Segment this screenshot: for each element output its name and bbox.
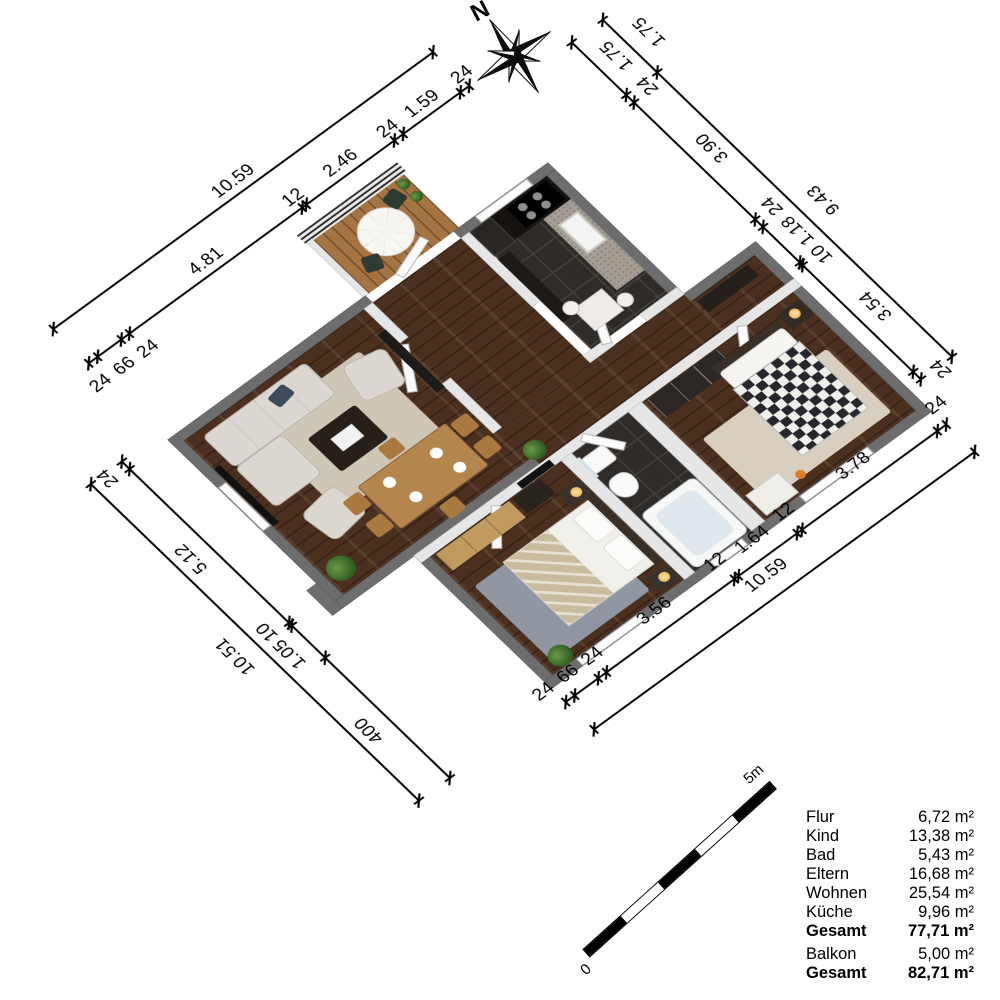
dimension-label-left_inner-1: 5.12 [170,540,213,577]
dimension-label-top_inner-0: 24 [85,370,117,397]
dimension-label-top_inner-5: 2.46 [318,145,362,181]
scale-bar-segment-1 [621,883,664,923]
legend-area-value: 9,96 m² [918,903,974,922]
dimension-label-right_outer-0: 1.75 [628,13,671,50]
legend-area-value: 77,71 m² [908,922,974,941]
compass-north-label: N [466,0,494,27]
legend-room-label: Kind [806,827,839,846]
legend-room-label: Wohnen [806,884,867,903]
legend-row-kind-1: Kind13,38 m² [806,827,974,846]
dimension-label-left_inner-3: 1.05 [268,635,311,672]
legend-row-gesamt-6: Gesamt77,71 m² [806,922,974,941]
scale-bar: 0 5m [582,781,777,958]
scale-bar-five-label: 5m [740,761,767,788]
dimension-label-top_inner-7: 1.59 [400,86,444,122]
legend-room-label: Balkon [806,945,856,964]
legend-room-label: Flur [806,808,834,827]
dimension-label-top_inner-2: 24 [132,336,164,363]
legend-area-value: 82,71 m² [908,964,974,983]
dimension-label-top_inner-3: 4.81 [184,243,228,279]
legend-area-value: 5,43 m² [918,846,974,865]
compass-rose-icon: N [452,0,582,110]
dimension-label-right_inner-6: 3.54 [855,287,898,324]
legend-row-balkon-7: Balkon5,00 m² [806,945,974,964]
dimension-label-right_outer-1: 9.43 [802,181,845,218]
legend-room-label: Bad [806,846,835,865]
scale-bar-zero-label: 0 [577,961,595,979]
legend-area-value: 6,72 m² [918,808,974,827]
legend-row-gesamt-8: Gesamt82,71 m² [806,964,974,983]
legend-row-eltern-3: Eltern16,68 m² [806,865,974,884]
legend-row-küche-5: Küche9,96 m² [806,903,974,922]
dimension-label-right_inner-5: 10 [806,240,838,267]
legend-room-label: Küche [806,903,853,922]
dimension-label-left_inner-0: 24 [92,465,124,492]
scale-bar-segment-0 [584,916,627,956]
dimension-label-right_inner-2: 3.90 [691,129,734,166]
scale-bar-segment-4 [732,782,775,822]
legend-row-flur-0: Flur6,72 m² [806,808,974,827]
legend-row-bad-2: Bad5,43 m² [806,846,974,865]
scale-bar-segment-3 [695,816,738,856]
legend-room-label: Gesamt [806,964,867,983]
legend-area-value: 13,38 m² [909,827,974,846]
floorplan-isometric-scene: 10.592466244.81122.46241.59241.759.431.7… [81,0,1000,835]
legend-room-label: Gesamt [806,922,867,941]
dimension-label-left_inner-4: 400 [349,713,388,747]
room-area-legend: Flur6,72 m²Kind13,38 m²Bad5,43 m²Eltern1… [806,808,974,983]
scale-bar-segment-2 [658,849,701,889]
legend-room-label: Eltern [806,865,849,884]
dimension-label-right_inner-3: 24 [757,192,789,219]
legend-area-value: 5,00 m² [918,945,974,964]
dimension-label-top_inner-1: 66 [109,353,141,380]
legend-area-value: 25,54 m² [909,884,974,903]
dimension-label-right_inner-0: 1.75 [595,37,638,74]
dimension-label-right_inner-1: 24 [632,72,664,99]
legend-area-value: 16,68 m² [909,865,974,884]
dimension-label-right_inner-4: 1.18 [777,212,820,249]
legend-row-wohnen-4: Wohnen25,54 m² [806,884,974,903]
